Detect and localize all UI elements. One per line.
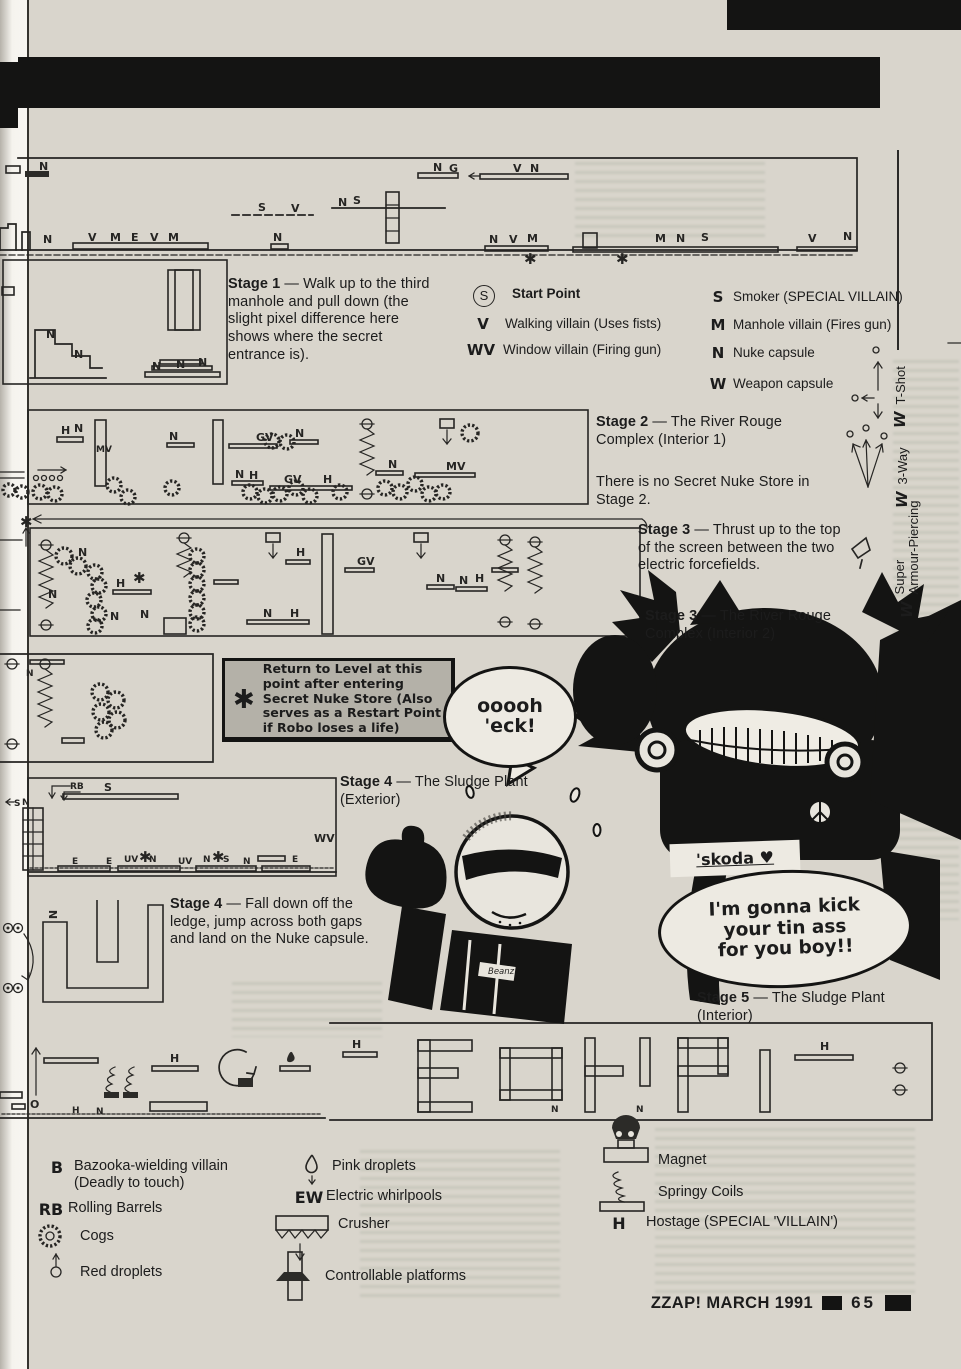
walking-villain-symbol: V [468,315,498,333]
svg-text:N: N [338,196,347,209]
svg-text:H: H [61,424,70,437]
stage1-inset-map: NNNNN [3,260,227,384]
svg-text:H: H [323,473,332,486]
svg-text:✱: ✱ [133,569,146,587]
svg-text:N: N [149,855,157,865]
footer-square-icon [822,1296,842,1310]
pink-droplets-icon [306,1155,317,1184]
svg-text:GV: GV [284,473,302,486]
svg-text:H: H [249,469,258,482]
legend-red-droplets: Red droplets [80,1264,162,1281]
svg-text:H: H [296,546,305,559]
restart-point-note-box: ✱ Return to Level at this point after en… [222,658,455,742]
legend-magnet: Magnet [658,1152,706,1169]
svg-text:V: V [150,231,159,244]
svg-text:M: M [527,232,538,245]
svg-text:GV: GV [256,431,274,444]
electric-whirlpools-symbol: EW [292,1188,326,1207]
stage3-caption-a: Stage 3 — Thrust up to the top of the sc… [638,522,843,575]
stage1-caption: Stage 1 — Walk up to the third manhole a… [228,276,433,364]
stage5-caption: Stage 5 — The Sludge Plant (Interior) [697,990,897,1025]
footer-square-icon [885,1295,911,1311]
svg-text:H: H [72,1106,80,1116]
svg-text:N: N [235,468,244,481]
key-nuke-capsule: N Nuke capsule [703,344,815,362]
stage2-map: HNMVNGVNNHGVHNMV [28,410,588,504]
rolling-barrels-symbol: RB [34,1200,68,1219]
key-weapon-capsule: W Weapon capsule [703,375,833,393]
svg-text:E: E [292,855,298,865]
stage2-caption: Stage 2 — The River Rouge Complex (Inter… [596,414,786,449]
svg-text:N: N [22,798,30,808]
stage4-caption-a: Stage 4 — The Sludge Plant (Exterior) [340,774,530,809]
svg-text:H: H [290,607,299,620]
svg-text:N: N [551,1105,559,1115]
springy-coils-icon [600,1172,644,1211]
svg-text:N: N [459,574,468,587]
robocop-figure [365,785,600,1024]
svg-text:S: S [353,194,361,207]
controllable-platforms-icon [276,1252,310,1300]
svg-text:S: S [223,855,229,865]
svg-text:N: N [176,358,185,371]
svg-text:H: H [116,577,125,590]
svg-text:N: N [152,360,161,373]
svg-text:N: N [96,1107,104,1117]
stage4-maze-map: N [4,900,164,1002]
svg-text:G: G [449,162,458,175]
stage3-caption-b: Stage 3 — The River Rouge Complex (Inter… [645,608,835,643]
column-separator [897,150,899,350]
svg-text:✱: ✱ [616,250,629,268]
red-droplets-icon [51,1254,61,1277]
nuke-capsule-symbol: N [703,344,733,362]
svg-text:N: N [46,328,55,341]
legend-rolling-barrels: RB Rolling Barrels [34,1200,162,1219]
svg-text:E: E [106,857,112,867]
svg-text:H: H [475,572,484,585]
stage4-caption-b: Stage 4 — Fall down off the ledge, jump … [170,896,375,949]
legend-hostage: H Hostage (SPECIAL 'VILLAIN') [602,1214,838,1233]
stage2-note: There is no Secret Nuke Store in Stage 2… [596,474,826,509]
legend-springy-coils: Springy Coils [658,1184,743,1201]
svg-text:S: S [701,231,709,244]
svg-text:N: N [530,162,539,175]
hostage-symbol: H [602,1214,636,1233]
svg-text:UV: UV [178,857,192,867]
svg-text:N: N [676,232,685,245]
robocop-speech-bubble: ooooh 'eck! [443,666,577,768]
stage4-exterior-map: RBSSNWVEEUV✱NUVN✱SNE [6,778,336,876]
svg-text:N: N [48,588,57,601]
svg-text:O: O [30,1098,39,1111]
svg-text:N: N [26,669,34,679]
svg-text:N: N [243,857,251,867]
stage5-map: OHHNHNNH [0,1023,932,1120]
secret-nuke-store-map: N [0,654,213,762]
svg-text:N: N [489,233,498,246]
svg-text:S: S [104,781,112,794]
svg-text:✱: ✱ [524,250,537,268]
svg-text:N: N [843,230,852,243]
svg-text:N: N [198,356,207,369]
key-smoker: S Smoker (SPECIAL VILLAIN) [703,288,903,306]
svg-text:H: H [820,1040,829,1053]
legend-electric-whirlpools: EW Electric whirlpools [292,1188,442,1207]
svg-text:N: N [636,1105,644,1115]
svg-text:V: V [513,162,522,175]
svg-text:N: N [169,430,178,443]
stage3-map: ✱NNH✱NNHNHGVNNH [20,513,647,636]
magazine-page: NNVMEVMSVNNSNGVNNVM✱✱MNSVN NNNNN [0,0,961,1369]
svg-text:S: S [14,799,20,809]
svg-text:N: N [203,855,211,865]
svg-text:N: N [263,607,272,620]
manhole-villain-symbol: M [703,316,733,334]
weapon-capsule-symbol: W [703,375,733,393]
svg-text:Beanz: Beanz [488,967,515,977]
stage1-map: NNVMEVMSVNNSNGVNNVM✱✱MNSVN [0,158,857,268]
svg-text:N: N [388,458,397,471]
svg-text:✱: ✱ [20,513,33,531]
svg-text:M: M [168,231,179,244]
svg-text:M: M [110,231,121,244]
svg-text:N: N [74,422,83,435]
svg-text:N: N [74,348,83,361]
restart-star-icon: ✱ [233,686,255,712]
key-walking-villain: V Walking villain (Uses fists) [468,315,661,333]
svg-text:N: N [436,572,445,585]
svg-text:H: H [170,1052,179,1065]
peace-badge [809,801,831,823]
magnet-icon [604,1115,648,1162]
legend-bazooka-villain: B Bazooka-wielding villain (Deadly to to… [40,1158,259,1193]
cogs-icon [40,1226,60,1246]
svg-text:H: H [352,1038,361,1051]
legend-crusher: Crusher [338,1216,390,1233]
weapon-tshot-label: W T-Shot [891,366,909,428]
svg-text:MV: MV [446,460,466,473]
key-window-villain: WV Window villain (Firing gun) [466,341,661,359]
legend-pink-droplets: Pink droplets [332,1158,416,1175]
page-number: 65 [851,1293,876,1313]
start-point-icon: S [473,285,495,307]
footer-title: ZZAP! MARCH 1991 [651,1294,813,1313]
gutter-fragments [0,166,28,1098]
svg-text:GV: GV [357,555,375,568]
key-start-point: S Start Point [468,285,580,307]
weapon-sap-label: W Super Armour-Piercing [893,501,922,618]
stage1-label: Stage 1 [228,276,280,292]
window-villain-symbol: WV [466,341,496,359]
weapon-3way-label: W 3-Way [893,447,911,508]
bazooka-symbol: B [40,1158,74,1177]
svg-text:N: N [78,546,87,559]
svg-text:N: N [39,160,48,173]
svg-text:V: V [88,231,97,244]
svg-text:E: E [72,857,78,867]
svg-text:M: M [655,232,666,245]
svg-text:N: N [295,427,304,440]
svg-text:RB: RB [70,782,84,792]
svg-text:N: N [140,608,149,621]
key-manhole-villain: M Manhole villain (Fires gun) [703,316,891,334]
page-footer: ZZAP! MARCH 1991 65 [651,1293,911,1313]
svg-text:V: V [509,233,518,246]
svg-text:WV: WV [314,832,335,845]
svg-text:N: N [110,610,119,623]
svg-text:N: N [433,161,442,174]
svg-text:UV: UV [124,855,138,865]
svg-text:N: N [46,910,59,919]
svg-text:S: S [258,201,266,214]
svg-text:V: V [808,232,817,245]
svg-text:E: E [131,231,139,244]
svg-text:V: V [291,202,300,215]
svg-text:N: N [273,231,282,244]
svg-text:N: N [43,233,52,246]
legend-controllable-platforms: Controllable platforms [325,1268,466,1285]
smoker-symbol: S [703,288,733,306]
svg-text:MV: MV [96,445,112,455]
legend-cogs: Cogs [80,1228,114,1245]
